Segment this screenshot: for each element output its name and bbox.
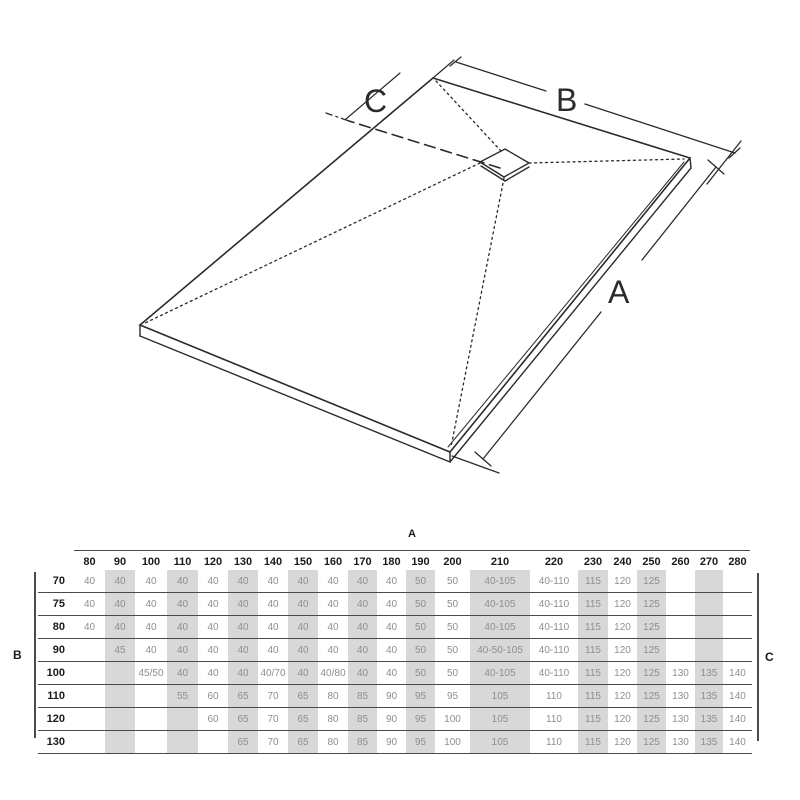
row-header-70: 70 — [38, 570, 74, 593]
cell-90-180: 40 — [377, 639, 406, 662]
col-header-100: 100 — [135, 554, 167, 570]
cell-75-90: 40 — [105, 593, 135, 616]
cell-75-220: 40-110 — [530, 593, 578, 616]
dim-label-c: C — [364, 83, 387, 119]
col-header-280: 280 — [723, 554, 752, 570]
cell-100-260: 130 — [666, 662, 695, 685]
cell-80-90: 40 — [105, 616, 135, 639]
cell-70-210: 40-105 — [470, 570, 530, 593]
page: C B A A 80901001101201301401501601701801… — [0, 0, 800, 800]
table-right-bracket — [757, 573, 759, 741]
cell-70-90: 40 — [105, 570, 135, 593]
cell-80-210: 40-105 — [470, 616, 530, 639]
cell-130-90 — [105, 731, 135, 754]
cell-90-230: 115 — [578, 639, 608, 662]
cell-90-130: 40 — [228, 639, 258, 662]
cell-110-130: 65 — [228, 685, 258, 708]
cell-120-210: 105 — [470, 708, 530, 731]
cell-70-170: 40 — [348, 570, 377, 593]
cell-120-120: 60 — [198, 708, 228, 731]
cell-70-120: 40 — [198, 570, 228, 593]
col-header-180: 180 — [377, 554, 406, 570]
col-header-90: 90 — [105, 554, 135, 570]
cell-70-110: 40 — [167, 570, 198, 593]
cell-75-240: 120 — [608, 593, 637, 616]
cell-130-120 — [198, 731, 228, 754]
col-header-210: 210 — [470, 554, 530, 570]
cell-80-170: 40 — [348, 616, 377, 639]
cell-90-120: 40 — [198, 639, 228, 662]
cell-110-210: 105 — [470, 685, 530, 708]
table-row-75: 754040404040404040404040505040-10540-110… — [38, 593, 752, 616]
cell-100-280: 140 — [723, 662, 752, 685]
cell-130-110 — [167, 731, 198, 754]
table-row-90: 9045404040404040404040505040-50-10540-11… — [38, 639, 752, 662]
col-header-260: 260 — [666, 554, 695, 570]
cell-130-160: 80 — [318, 731, 348, 754]
table-axis-b-label: B — [13, 648, 22, 662]
cell-130-170: 85 — [348, 731, 377, 754]
cell-90-210: 40-50-105 — [470, 639, 530, 662]
cell-75-180: 40 — [377, 593, 406, 616]
row-header-110: 110 — [38, 685, 74, 708]
cell-100-90 — [105, 662, 135, 685]
cell-120-260: 130 — [666, 708, 695, 731]
cell-110-180: 90 — [377, 685, 406, 708]
cell-100-180: 40 — [377, 662, 406, 685]
table-row-100: 10045/5040404040/704040/804040505040-105… — [38, 662, 752, 685]
cell-90-190: 50 — [406, 639, 435, 662]
cell-120-80 — [74, 708, 105, 731]
cell-80-80: 40 — [74, 616, 105, 639]
col-header-240: 240 — [608, 554, 637, 570]
col-header-170: 170 — [348, 554, 377, 570]
cell-80-250: 125 — [637, 616, 666, 639]
cell-120-110 — [167, 708, 198, 731]
cell-120-230: 115 — [578, 708, 608, 731]
cell-70-190: 50 — [406, 570, 435, 593]
cell-120-200: 100 — [435, 708, 470, 731]
cell-130-260: 130 — [666, 731, 695, 754]
cell-70-240: 120 — [608, 570, 637, 593]
cell-70-280 — [723, 570, 752, 593]
cell-120-140: 70 — [258, 708, 288, 731]
cell-75-80: 40 — [74, 593, 105, 616]
cell-100-170: 40 — [348, 662, 377, 685]
cell-75-120: 40 — [198, 593, 228, 616]
cell-130-280: 140 — [723, 731, 752, 754]
cell-90-270 — [695, 639, 723, 662]
col-header-270: 270 — [695, 554, 723, 570]
cell-130-200: 100 — [435, 731, 470, 754]
cell-100-230: 115 — [578, 662, 608, 685]
cell-75-280 — [723, 593, 752, 616]
table-axis-c-label: C — [765, 650, 774, 664]
corner-cell — [38, 554, 74, 570]
cell-80-260 — [666, 616, 695, 639]
row-header-75: 75 — [38, 593, 74, 616]
cell-110-100 — [135, 685, 167, 708]
table-row-110: 1105560657065808590959510511011512012513… — [38, 685, 752, 708]
cell-110-150: 65 — [288, 685, 318, 708]
table-top-rule — [74, 550, 750, 551]
cell-110-170: 85 — [348, 685, 377, 708]
col-header-130: 130 — [228, 554, 258, 570]
cell-100-220: 40-110 — [530, 662, 578, 685]
cell-120-220: 110 — [530, 708, 578, 731]
cell-120-150: 65 — [288, 708, 318, 731]
cell-80-110: 40 — [167, 616, 198, 639]
shower-tray-diagram: C B A — [0, 0, 800, 530]
cell-100-200: 50 — [435, 662, 470, 685]
cell-110-250: 125 — [637, 685, 666, 708]
cell-80-270 — [695, 616, 723, 639]
cell-130-220: 110 — [530, 731, 578, 754]
cell-75-260 — [666, 593, 695, 616]
cell-130-150: 65 — [288, 731, 318, 754]
cell-90-200: 50 — [435, 639, 470, 662]
row-header-100: 100 — [38, 662, 74, 685]
cell-70-220: 40-110 — [530, 570, 578, 593]
cell-80-100: 40 — [135, 616, 167, 639]
cell-120-100 — [135, 708, 167, 731]
cell-110-120: 60 — [198, 685, 228, 708]
cell-80-230: 115 — [578, 616, 608, 639]
cell-90-150: 40 — [288, 639, 318, 662]
col-header-150: 150 — [288, 554, 318, 570]
cell-80-200: 50 — [435, 616, 470, 639]
col-header-160: 160 — [318, 554, 348, 570]
cell-110-110: 55 — [167, 685, 198, 708]
cell-70-160: 40 — [318, 570, 348, 593]
cell-70-80: 40 — [74, 570, 105, 593]
cell-120-240: 120 — [608, 708, 637, 731]
cell-80-180: 40 — [377, 616, 406, 639]
cell-100-110: 40 — [167, 662, 198, 685]
cell-80-220: 40-110 — [530, 616, 578, 639]
dim-label-a: A — [608, 274, 630, 310]
cell-75-150: 40 — [288, 593, 318, 616]
cell-75-170: 40 — [348, 593, 377, 616]
cell-80-150: 40 — [288, 616, 318, 639]
cell-120-170: 85 — [348, 708, 377, 731]
col-header-110: 110 — [167, 554, 198, 570]
cell-90-250: 125 — [637, 639, 666, 662]
cell-130-80 — [74, 731, 105, 754]
cell-130-240: 120 — [608, 731, 637, 754]
cell-90-90: 45 — [105, 639, 135, 662]
cell-70-230: 115 — [578, 570, 608, 593]
cell-130-250: 125 — [637, 731, 666, 754]
cell-110-90 — [105, 685, 135, 708]
cell-100-190: 50 — [406, 662, 435, 685]
cell-75-140: 40 — [258, 593, 288, 616]
cell-100-140: 40/70 — [258, 662, 288, 685]
cell-90-170: 40 — [348, 639, 377, 662]
cell-70-200: 50 — [435, 570, 470, 593]
cell-90-110: 40 — [167, 639, 198, 662]
dim-label-b: B — [556, 82, 577, 118]
cell-110-240: 120 — [608, 685, 637, 708]
cell-130-130: 65 — [228, 731, 258, 754]
cell-100-80 — [74, 662, 105, 685]
cell-130-190: 95 — [406, 731, 435, 754]
cell-80-240: 120 — [608, 616, 637, 639]
col-header-250: 250 — [637, 554, 666, 570]
cell-120-190: 95 — [406, 708, 435, 731]
row-header-130: 130 — [38, 731, 74, 754]
cell-90-240: 120 — [608, 639, 637, 662]
cell-75-190: 50 — [406, 593, 435, 616]
cell-80-160: 40 — [318, 616, 348, 639]
column-header-row: 8090100110120130140150160170180190200210… — [38, 554, 752, 570]
cell-75-160: 40 — [318, 593, 348, 616]
row-header-120: 120 — [38, 708, 74, 731]
cell-100-240: 120 — [608, 662, 637, 685]
cell-70-180: 40 — [377, 570, 406, 593]
cell-110-160: 80 — [318, 685, 348, 708]
cell-80-130: 40 — [228, 616, 258, 639]
cell-120-90 — [105, 708, 135, 731]
cell-70-270 — [695, 570, 723, 593]
cell-90-260 — [666, 639, 695, 662]
cell-100-100: 45/50 — [135, 662, 167, 685]
cell-80-140: 40 — [258, 616, 288, 639]
cell-100-150: 40 — [288, 662, 318, 685]
cell-90-160: 40 — [318, 639, 348, 662]
cell-110-190: 95 — [406, 685, 435, 708]
cell-70-100: 40 — [135, 570, 167, 593]
cell-130-210: 105 — [470, 731, 530, 754]
cell-80-280 — [723, 616, 752, 639]
cell-75-250: 125 — [637, 593, 666, 616]
cell-130-100 — [135, 731, 167, 754]
cell-100-250: 125 — [637, 662, 666, 685]
cell-75-270 — [695, 593, 723, 616]
cell-100-160: 40/80 — [318, 662, 348, 685]
cell-110-220: 110 — [530, 685, 578, 708]
table-axis-a-label: A — [74, 528, 750, 540]
col-header-220: 220 — [530, 554, 578, 570]
cell-70-130: 40 — [228, 570, 258, 593]
cell-120-280: 140 — [723, 708, 752, 731]
table-left-bracket — [34, 572, 36, 738]
dimensions-table: 8090100110120130140150160170180190200210… — [38, 554, 752, 754]
cell-75-130: 40 — [228, 593, 258, 616]
cell-120-130: 65 — [228, 708, 258, 731]
dim-c-dashdot-extension — [326, 113, 349, 121]
cell-120-180: 90 — [377, 708, 406, 731]
table-row-80: 804040404040404040404040505040-10540-110… — [38, 616, 752, 639]
cell-90-220: 40-110 — [530, 639, 578, 662]
cell-130-180: 90 — [377, 731, 406, 754]
cell-100-210: 40-105 — [470, 662, 530, 685]
row-header-90: 90 — [38, 639, 74, 662]
cell-90-100: 40 — [135, 639, 167, 662]
cell-75-230: 115 — [578, 593, 608, 616]
cell-110-270: 135 — [695, 685, 723, 708]
col-header-80: 80 — [74, 554, 105, 570]
cell-100-270: 135 — [695, 662, 723, 685]
cell-90-280 — [723, 639, 752, 662]
cell-120-160: 80 — [318, 708, 348, 731]
cell-110-280: 140 — [723, 685, 752, 708]
table-row-130: 1306570658085909510010511011512012513013… — [38, 731, 752, 754]
cell-75-200: 50 — [435, 593, 470, 616]
cell-100-120: 40 — [198, 662, 228, 685]
col-header-230: 230 — [578, 554, 608, 570]
col-header-140: 140 — [258, 554, 288, 570]
cell-120-250: 125 — [637, 708, 666, 731]
table-row-120: 1206065706580859095100105110115120125130… — [38, 708, 752, 731]
cell-130-140: 70 — [258, 731, 288, 754]
col-header-120: 120 — [198, 554, 228, 570]
cell-110-80 — [74, 685, 105, 708]
cell-75-210: 40-105 — [470, 593, 530, 616]
cell-130-230: 115 — [578, 731, 608, 754]
cell-120-270: 135 — [695, 708, 723, 731]
cell-90-140: 40 — [258, 639, 288, 662]
table-row-70: 704040404040404040404040505040-10540-110… — [38, 570, 752, 593]
cell-110-230: 115 — [578, 685, 608, 708]
tray-top-face — [140, 78, 690, 452]
cell-110-200: 95 — [435, 685, 470, 708]
cell-100-130: 40 — [228, 662, 258, 685]
row-header-80: 80 — [38, 616, 74, 639]
cell-70-250: 125 — [637, 570, 666, 593]
cell-110-260: 130 — [666, 685, 695, 708]
cell-80-120: 40 — [198, 616, 228, 639]
col-header-200: 200 — [435, 554, 470, 570]
cell-70-140: 40 — [258, 570, 288, 593]
cell-80-190: 50 — [406, 616, 435, 639]
cell-110-140: 70 — [258, 685, 288, 708]
cell-75-110: 40 — [167, 593, 198, 616]
cell-130-270: 135 — [695, 731, 723, 754]
cell-70-260 — [666, 570, 695, 593]
cell-90-80 — [74, 639, 105, 662]
cell-75-100: 40 — [135, 593, 167, 616]
col-header-190: 190 — [406, 554, 435, 570]
cell-70-150: 40 — [288, 570, 318, 593]
